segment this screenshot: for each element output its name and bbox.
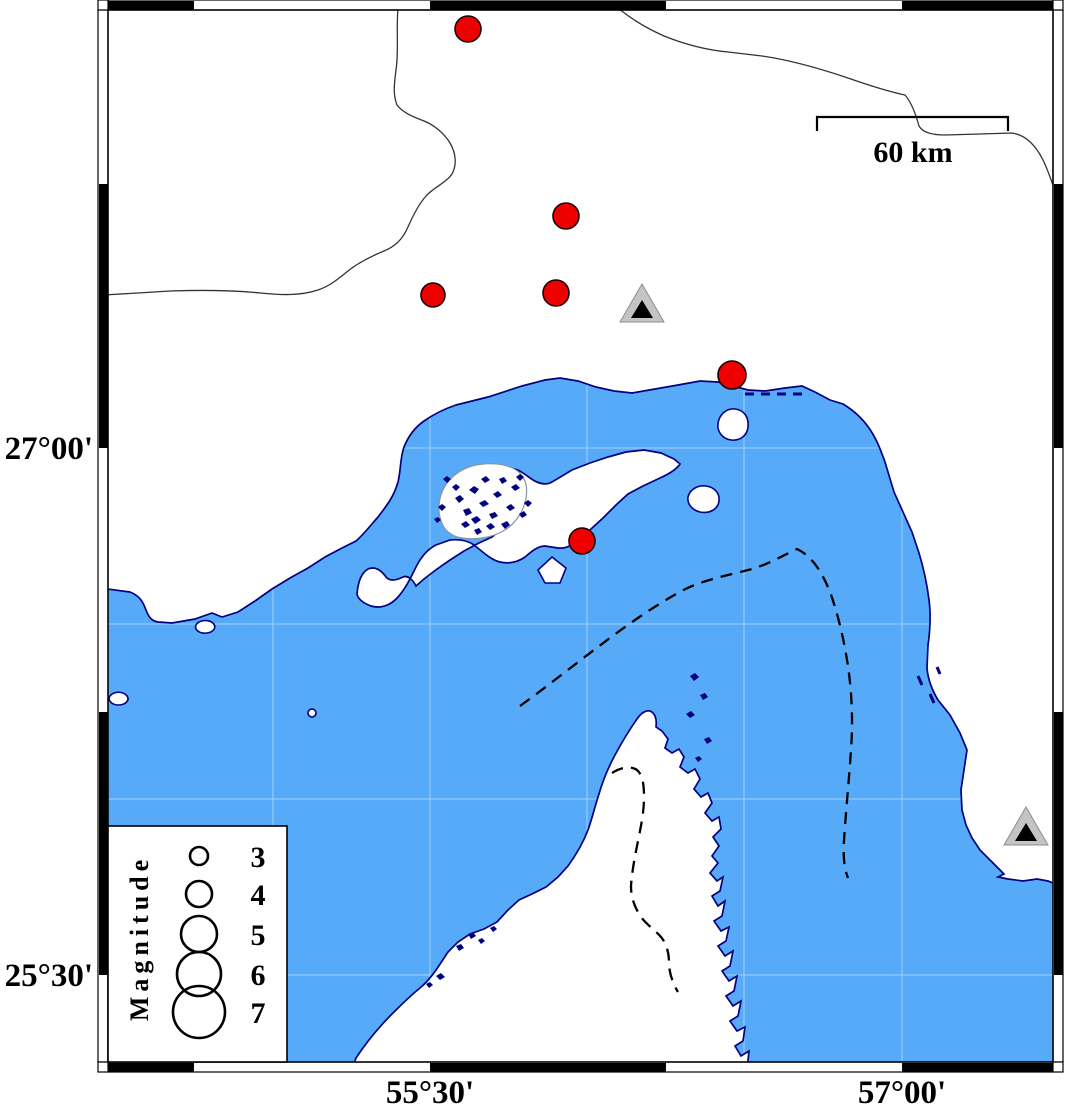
legend-magnitude-label: 6	[251, 959, 266, 992]
latitude-label-25-30: 25°30'	[5, 958, 93, 994]
magnitude-legend: Magnitude 34567	[108, 826, 287, 1062]
epicenter-marker	[421, 283, 445, 307]
epicenter-marker	[569, 528, 595, 554]
map-canvas: 27°00' 25°30' 55°30' 57°00' 60 km Magnit…	[0, 0, 1066, 1112]
epicenter-marker	[553, 203, 579, 229]
longitude-label-57-00: 57°00'	[858, 1075, 946, 1111]
legend-magnitude-label: 3	[251, 841, 266, 874]
legend-magnitude-label: 7	[251, 997, 266, 1030]
latitude-label-27-00: 27°00'	[5, 431, 93, 467]
legend-title: Magnitude	[125, 855, 154, 1021]
legend-magnitude-label: 5	[251, 919, 266, 952]
legend-magnitude-label: 4	[251, 879, 266, 912]
longitude-label-55-30: 55°30'	[386, 1075, 474, 1111]
seismicity-map-figure: 27°00' 25°30' 55°30' 57°00' 60 km Magnit…	[0, 0, 1066, 1112]
epicenter-marker	[455, 16, 481, 42]
scale-bar-label: 60 km	[873, 136, 952, 169]
epicenter-marker	[543, 280, 569, 306]
epicenter-marker	[718, 361, 746, 389]
